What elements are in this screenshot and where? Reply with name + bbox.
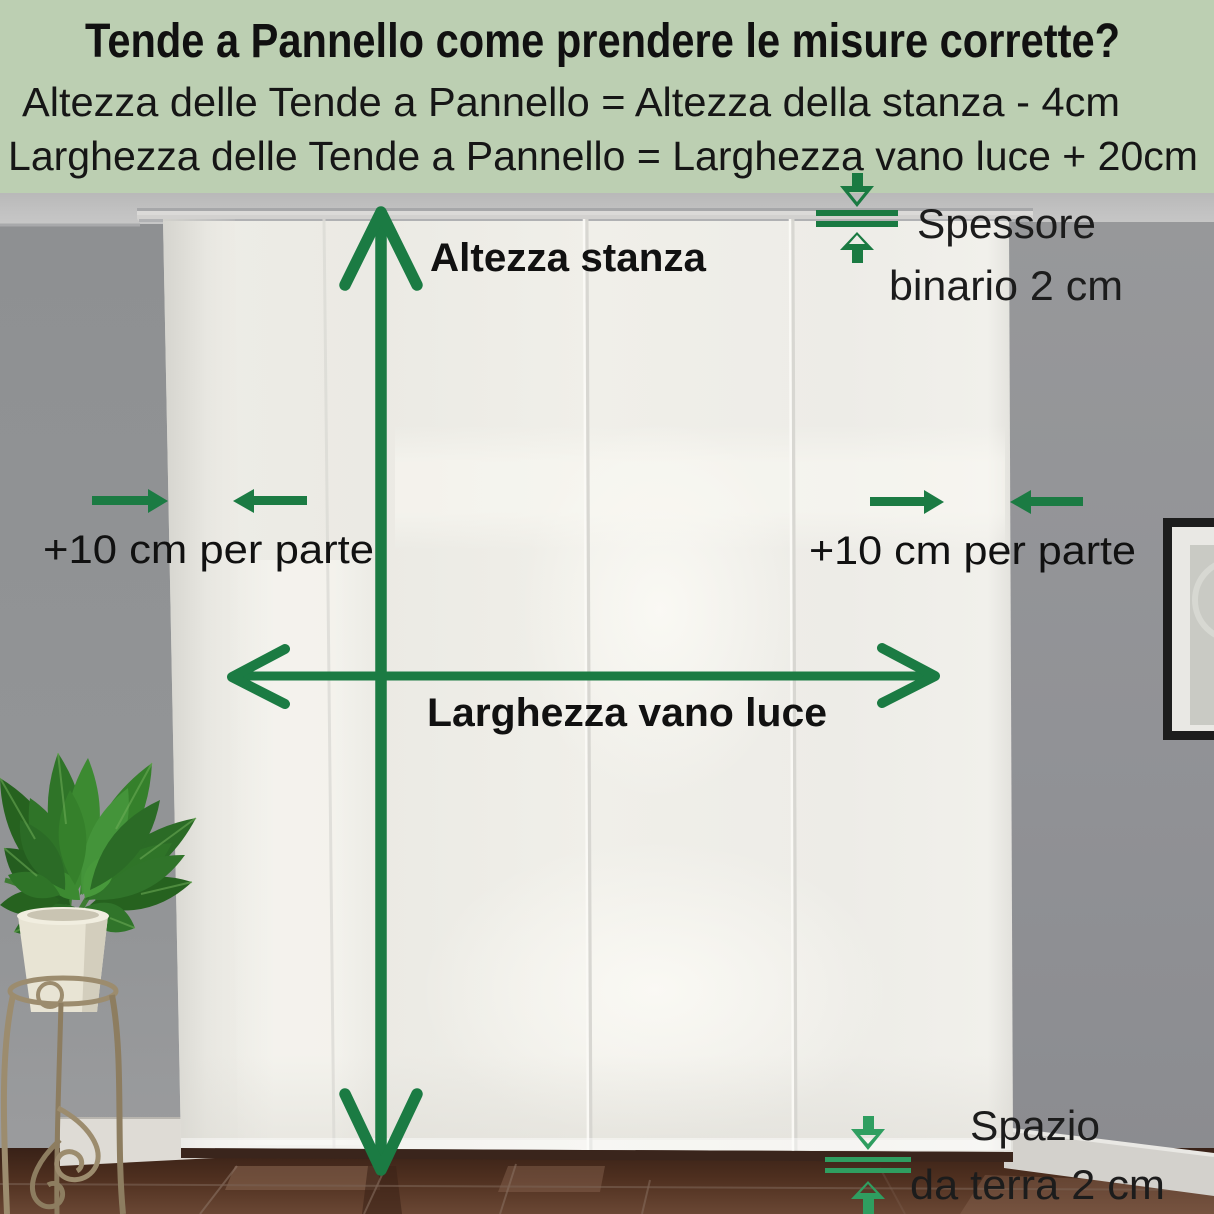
svg-text:Larghezza delle Tende a Pannel: Larghezza delle Tende a Pannello = Largh…: [8, 133, 1198, 179]
svg-text:da terra 2 cm: da terra 2 cm: [910, 1161, 1165, 1208]
svg-text:Spazio: Spazio: [970, 1102, 1100, 1149]
svg-text:+10 cm per parte: +10 cm per parte: [809, 529, 1136, 573]
svg-text:Altezza stanza: Altezza stanza: [430, 236, 707, 280]
svg-text:Altezza delle Tende a Pannello: Altezza delle Tende a Pannello = Altezza…: [22, 79, 1120, 125]
svg-text:Spessore: Spessore: [917, 200, 1096, 247]
svg-text:Tende a Pannello come prendere: Tende a Pannello come prendere le misure…: [85, 15, 1120, 68]
svg-text:Larghezza vano luce: Larghezza vano luce: [427, 691, 827, 735]
svg-text:binario 2 cm: binario 2 cm: [889, 262, 1123, 309]
svg-text:+10 cm per parte: +10 cm per parte: [43, 528, 374, 572]
